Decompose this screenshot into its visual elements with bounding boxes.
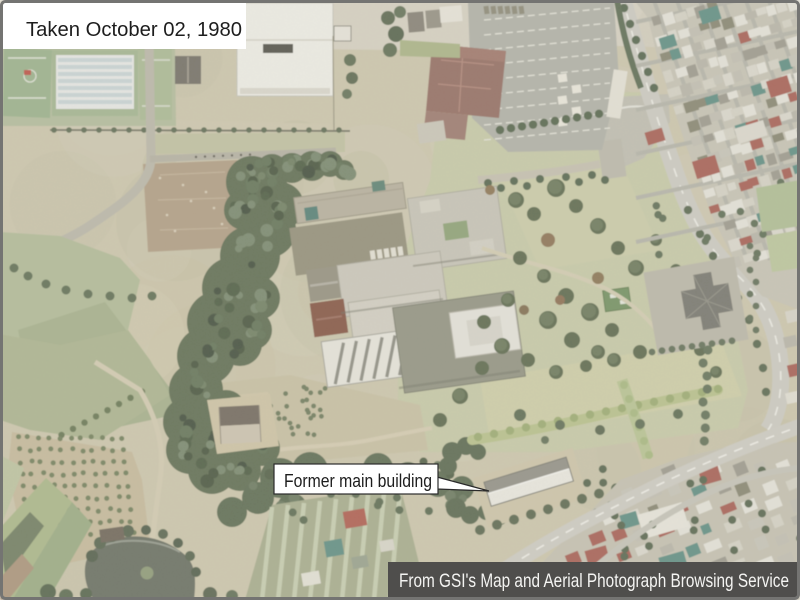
svg-text:Taken October 02, 1980: Taken October 02, 1980 xyxy=(26,18,242,41)
svg-text:Former main building: Former main building xyxy=(284,471,432,491)
svg-text:From GSI's Map and Aerial Phot: From GSI's Map and Aerial Photograph Bro… xyxy=(399,570,789,592)
